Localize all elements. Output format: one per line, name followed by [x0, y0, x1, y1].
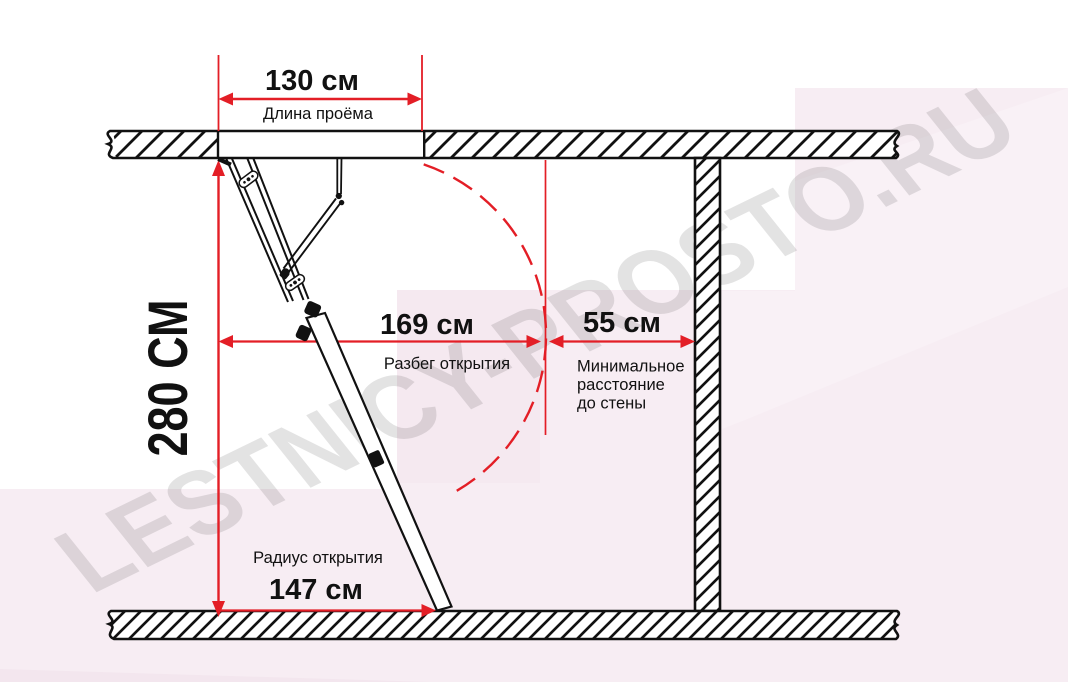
svg-text:169 см: 169 см [380, 309, 474, 341]
svg-text:до стены: до стены [577, 395, 646, 413]
svg-text:55 см: 55 см [583, 307, 661, 339]
svg-text:расстояние: расстояние [577, 376, 665, 394]
svg-text:147 см: 147 см [269, 574, 363, 606]
svg-text:Минимальное: Минимальное [577, 358, 685, 376]
svg-text:Радиус открытия: Радиус открытия [253, 549, 383, 567]
svg-text:Разбег открытия: Разбег открытия [384, 355, 510, 373]
svg-text:130 см: 130 см [265, 65, 359, 97]
svg-text:280 СМ: 280 СМ [136, 300, 199, 457]
svg-text:Длина проёма: Длина проёма [263, 105, 374, 123]
